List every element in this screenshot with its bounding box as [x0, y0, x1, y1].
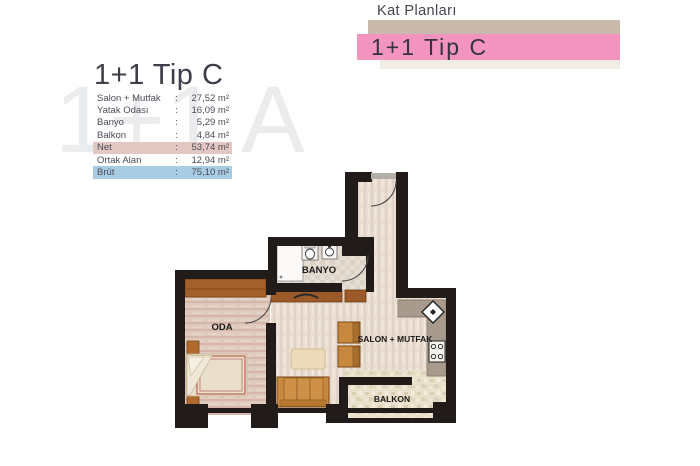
row-separator: : [172, 117, 181, 128]
row-label: Balkon [97, 130, 172, 141]
floor-plan: ODA BANYO SALON + MUTFAK BALKON [160, 160, 470, 450]
row-separator: : [172, 142, 181, 153]
row-separator: : [172, 105, 181, 116]
row-value: 53,74 m² [181, 142, 229, 153]
row-label: Yatak Odası [97, 105, 172, 116]
row-label: Net [97, 142, 172, 153]
window [180, 408, 446, 413]
washbasin-icon [322, 244, 337, 259]
coffee-table-icon [291, 349, 325, 369]
room-label-salon-mutfak: SALON + MUTFAK [358, 334, 434, 344]
wardrobe-icon [185, 279, 266, 297]
row-value: 16,09 m² [181, 105, 229, 116]
row-value: 5,29 m² [181, 117, 229, 128]
wall [175, 270, 276, 279]
table-row: Salon + Mutfak : 27,52 m² [93, 92, 232, 104]
wall [266, 323, 276, 409]
floorplan-page: { "header": { "kicker": "Kat Planları", … [0, 0, 700, 466]
row-label: Salon + Mutfak [97, 93, 172, 104]
row-separator: : [172, 93, 181, 104]
wall [339, 377, 412, 385]
wall [251, 404, 278, 428]
banner-tan-bar [368, 20, 620, 34]
hall-cabinet-icon [345, 290, 366, 302]
table-row: Yatak Odası : 16,09 m² [93, 104, 232, 116]
banner-title: 1+1 Tip C [357, 34, 620, 60]
row-separator: : [172, 130, 181, 141]
banner-pink-bar: 1+1 Tip C [357, 34, 620, 60]
table-row: Balkon : 4,84 m² [93, 129, 232, 141]
wall [339, 377, 348, 423]
window [339, 418, 456, 423]
wall [175, 404, 208, 428]
shower-icon [277, 243, 303, 281]
wall [345, 172, 358, 240]
room-label-balkon: BALKON [374, 394, 410, 404]
sofa-icon [277, 377, 329, 407]
row-value: 4,84 m² [181, 130, 229, 141]
armchair-icon [338, 346, 360, 367]
entry-threshold [371, 173, 396, 179]
table-row-net: Net : 53,74 m² [93, 142, 232, 154]
nightstand-icon [187, 341, 199, 354]
row-value: 27,52 m² [181, 93, 229, 104]
table-row: Banyo : 5,29 m² [93, 117, 232, 129]
page-kicker: Kat Planları [377, 3, 457, 19]
wall [366, 237, 374, 292]
room-label-oda: ODA [211, 322, 232, 333]
banner-cream-bar [380, 60, 620, 69]
stove-icon [429, 341, 445, 362]
room-label-banyo: BANYO [302, 265, 336, 276]
row-label: Banyo [97, 117, 172, 128]
wall [396, 172, 408, 292]
wall [266, 279, 276, 295]
wall [268, 283, 342, 292]
wall [345, 172, 372, 182]
unit-title: 1+1 Tip C [94, 59, 223, 92]
shower-drain [280, 276, 283, 279]
